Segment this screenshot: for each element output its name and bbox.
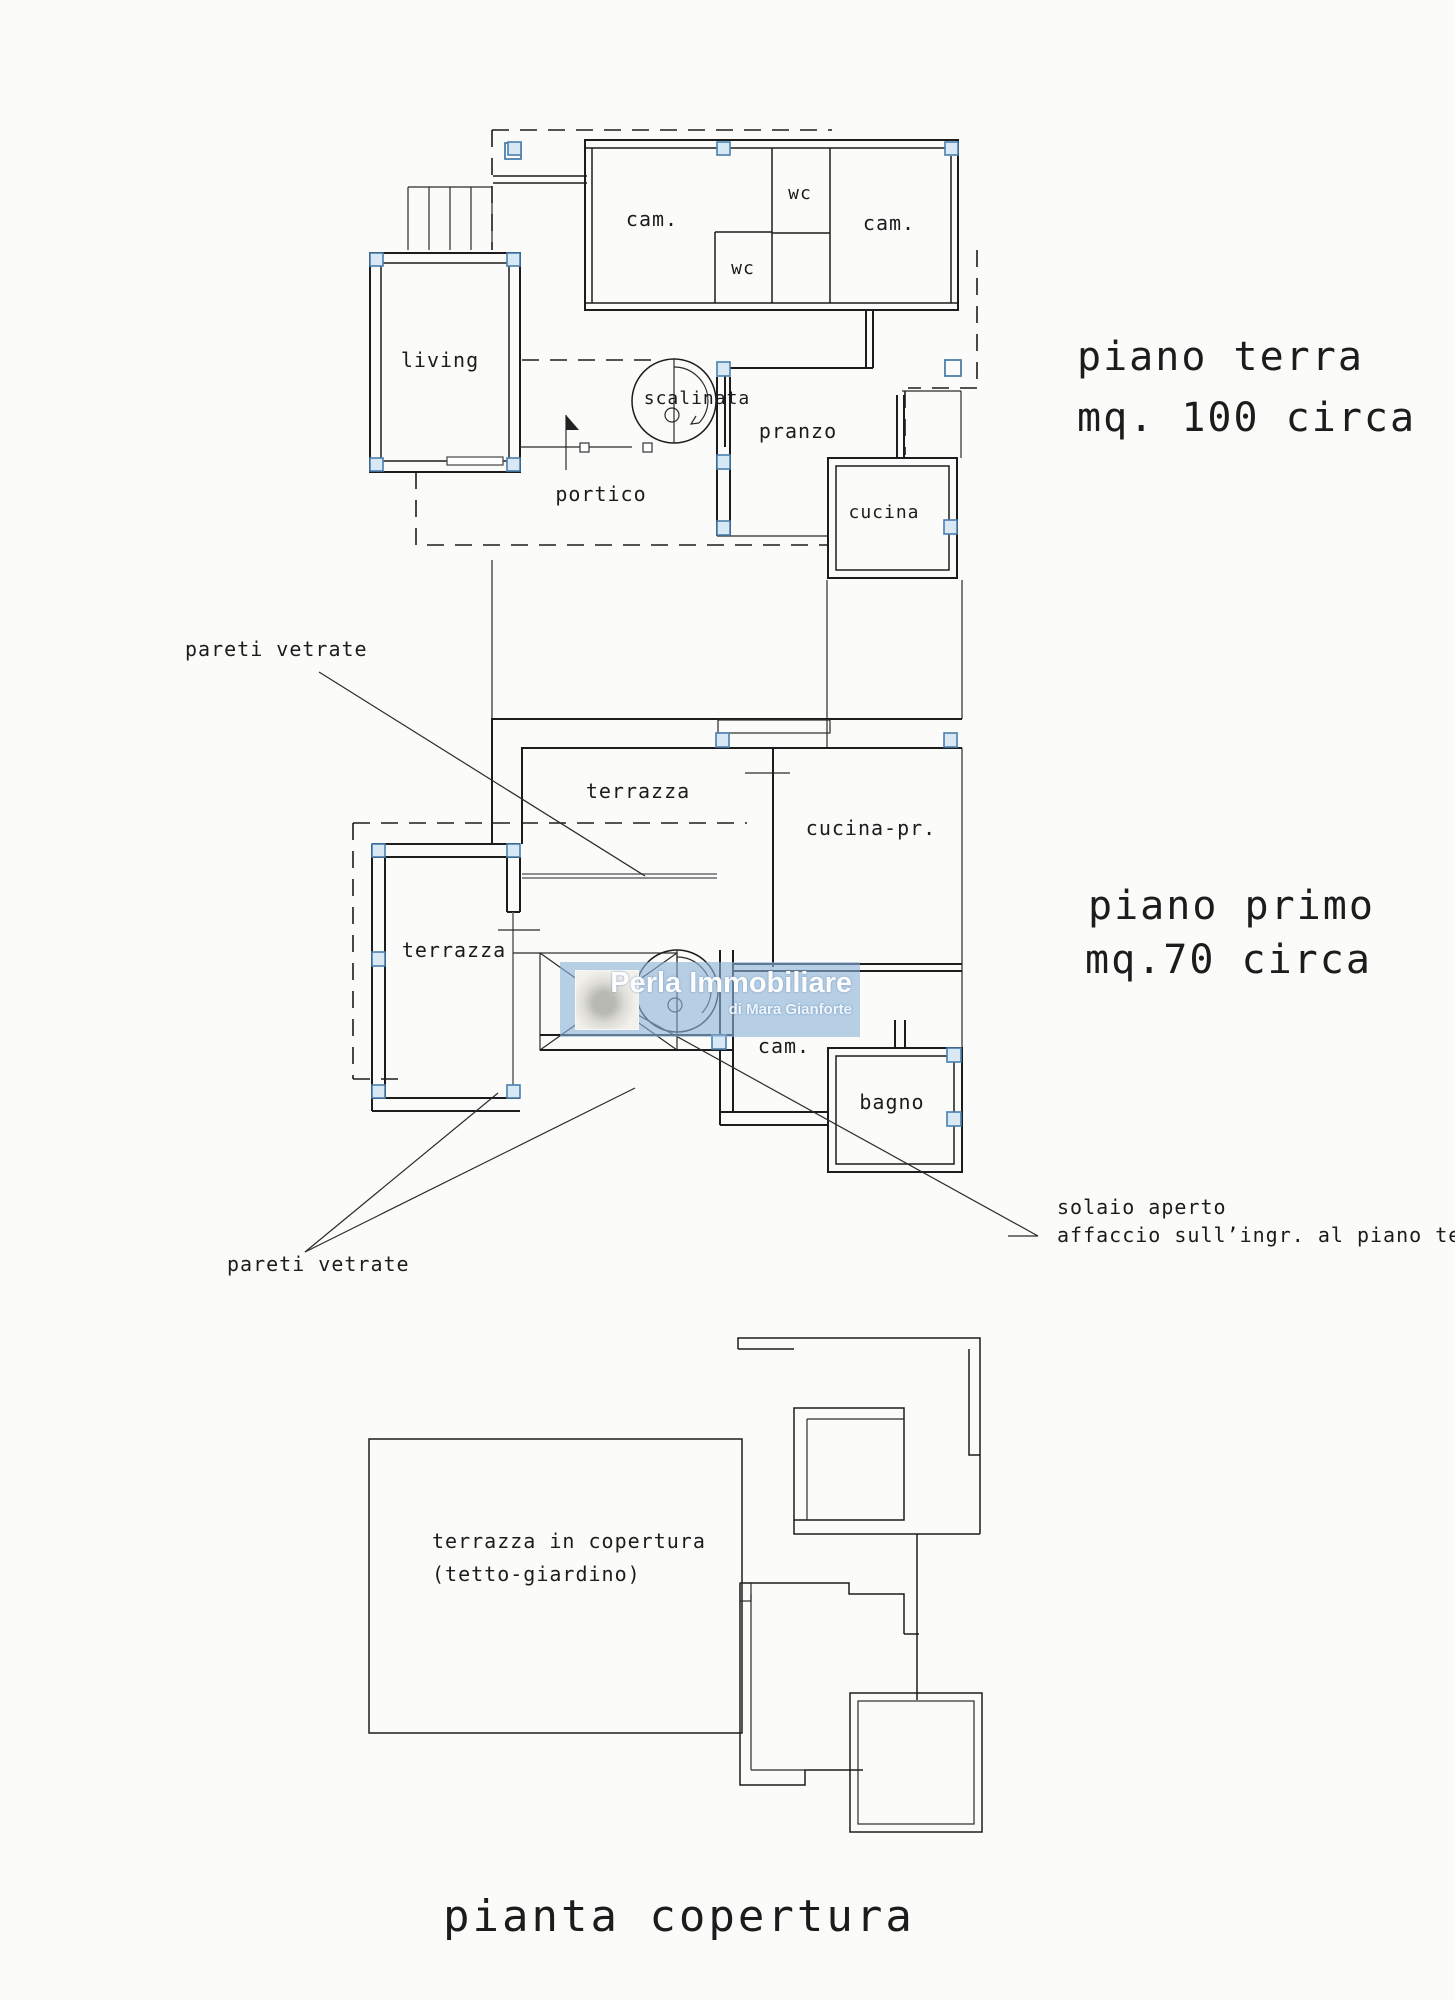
door-swing-flag	[566, 415, 579, 430]
room-label-cucina: cucina	[848, 503, 919, 523]
room-label-terrazza-top: terrazza	[586, 780, 690, 802]
floor-plan-sheet: Perla Immobiliare di Mara Gianforte cam.…	[0, 0, 1455, 2000]
room-label-scalinata: scalinata	[644, 389, 751, 409]
ground-floor-area: mq. 100 circa	[1077, 396, 1416, 440]
roof-label-line2: (tetto-giardino)	[432, 1563, 641, 1585]
glass-walls	[498, 857, 540, 1085]
external-stairs	[408, 176, 587, 250]
first-floor-area: mq.70 circa	[1085, 938, 1372, 982]
annotation-pareti-vetrate-bottom: pareti vetrate	[227, 1253, 410, 1275]
room-label-living: living	[401, 349, 479, 371]
room-label-portico: portico	[555, 483, 646, 505]
room-label-pranzo: pranzo	[759, 420, 837, 442]
roof-terrace-outline	[369, 1439, 742, 1733]
annotation-solaio-line2: affaccio sull’ingr. al piano terra	[1057, 1224, 1455, 1246]
cucina-pr-walls	[733, 748, 962, 971]
roof-label-line1: terrazza in copertura	[432, 1530, 706, 1552]
roof-upper-right-volume	[738, 1338, 980, 1534]
living-window	[447, 457, 503, 465]
room-label-cam-first: cam.	[758, 1035, 810, 1057]
ground-dashed-boundary	[416, 130, 977, 545]
roof-middle-volume	[740, 1583, 919, 1785]
annotation-solaio-line1: solaio aperto	[1057, 1196, 1227, 1218]
first-floor-title: piano primo	[1088, 884, 1375, 928]
terrace-left-walls	[372, 844, 520, 1111]
ground-floor-title: piano terra	[1077, 335, 1364, 379]
room-label-wc-top: wc	[788, 184, 812, 204]
cam-bagno-walls	[720, 748, 962, 1172]
room-label-bagno: bagno	[859, 1091, 924, 1113]
room-label-terrazza-left: terrazza	[402, 939, 506, 961]
agency-name: Perla Immobiliare	[610, 969, 852, 998]
room-label-cucina-pr: cucina-pr.	[806, 817, 936, 839]
agency-watermark: Perla Immobiliare di Mara Gianforte	[560, 962, 860, 1037]
room-label-cam-left: cam.	[626, 208, 678, 230]
roof-lower-right-volume	[850, 1693, 982, 1832]
room-label-wc-bottom: wc	[731, 259, 755, 279]
agency-subtitle: di Mara Gianforte	[610, 1001, 852, 1018]
ground-pillars	[370, 142, 958, 535]
room-label-cam-right: cam.	[863, 212, 915, 234]
roof-plan-title: pianta copertura	[443, 1893, 915, 1941]
annotation-pareti-vetrate-top: pareti vetrate	[185, 638, 368, 660]
